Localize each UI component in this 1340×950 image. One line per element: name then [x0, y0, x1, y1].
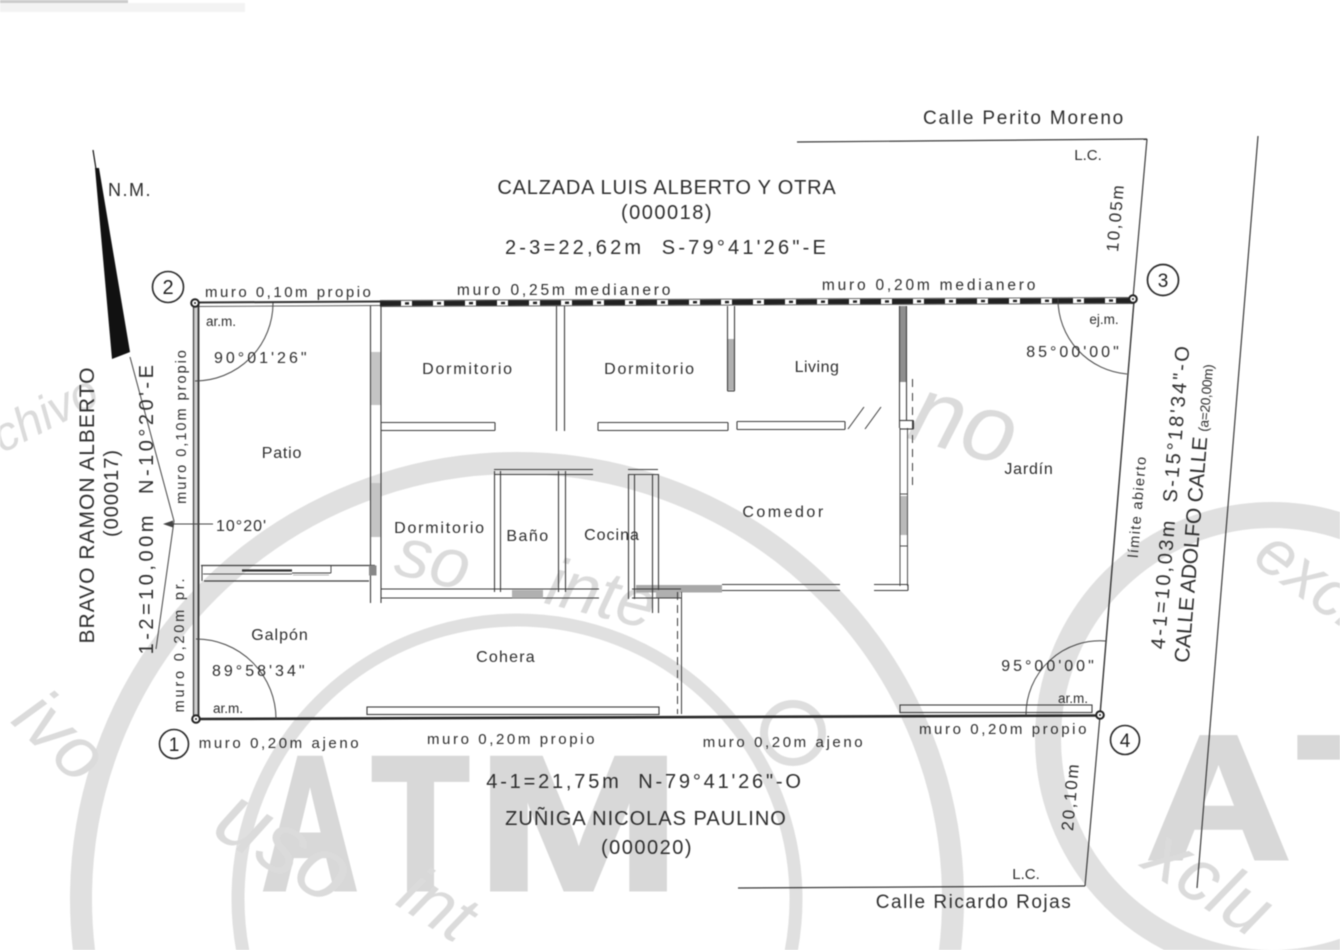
- svg-text:Cohera: Cohera: [476, 649, 536, 666]
- svg-text:4-1=21,75m N-79°41'26"-O: 4-1=21,75m N-79°41'26"-O: [486, 771, 803, 793]
- svg-text:CALZADA LUIS ALBERTO Y OTRA: CALZADA LUIS ALBERTO Y OTRA: [497, 177, 836, 199]
- svg-text:3: 3: [1158, 271, 1169, 292]
- svg-text:Dormitorio: Dormitorio: [394, 520, 486, 537]
- svg-text:muro 0,10m propio: muro 0,10m propio: [174, 348, 190, 504]
- svg-text:Dormitorio: Dormitorio: [604, 361, 696, 378]
- svg-text:Comedor: Comedor: [742, 504, 825, 521]
- svg-text:muro 0,20m pr.: muro 0,20m pr.: [172, 576, 188, 713]
- svg-text:ar.m.: ar.m.: [213, 701, 243, 716]
- svg-text:10°20': 10°20': [216, 518, 267, 535]
- svg-text:muro 0,10m propio: muro 0,10m propio: [205, 284, 373, 301]
- svg-text:ZUÑIGA NICOLAS PAULINO: ZUÑIGA NICOLAS PAULINO: [505, 806, 787, 830]
- svg-text:BRAVO RAMON ALBERTO: BRAVO RAMON ALBERTO: [76, 367, 99, 644]
- svg-text:(000020): (000020): [601, 837, 693, 859]
- svg-text:muro 0,20m ajeno: muro 0,20m ajeno: [199, 735, 362, 752]
- svg-text:muro 0,20m propio: muro 0,20m propio: [919, 721, 1089, 738]
- svg-text:85°00'00": 85°00'00": [1026, 344, 1122, 361]
- svg-text:T: T: [1298, 701, 1340, 896]
- svg-text:Cocina: Cocina: [584, 527, 640, 544]
- svg-text:Jardín: Jardín: [1004, 461, 1053, 478]
- svg-text:muro 0,20m propio: muro 0,20m propio: [427, 731, 597, 748]
- svg-text:4: 4: [1120, 731, 1131, 752]
- svg-text:N.M.: N.M.: [108, 180, 152, 200]
- svg-text:(000017): (000017): [101, 449, 123, 537]
- svg-text:muro 0,20m medianero: muro 0,20m medianero: [822, 277, 1038, 294]
- svg-text:Calle Perito Moreno: Calle Perito Moreno: [923, 108, 1125, 129]
- svg-text:89°58'34": 89°58'34": [212, 663, 308, 680]
- svg-text:L.C.: L.C.: [1074, 147, 1102, 164]
- svg-text:1-2=10,00m N-10°20'-E: 1-2=10,00m N-10°20'-E: [136, 362, 158, 655]
- svg-text:muro 0,25m medianero: muro 0,25m medianero: [457, 282, 673, 299]
- svg-text:90°01'26": 90°01'26": [214, 350, 310, 367]
- svg-text:muro 0,20m ajeno: muro 0,20m ajeno: [703, 734, 866, 751]
- svg-text:2: 2: [162, 277, 173, 299]
- svg-text:Baño: Baño: [506, 528, 549, 545]
- svg-text:1: 1: [169, 735, 180, 756]
- svg-text:Calle Ricardo Rojas: Calle Ricardo Rojas: [876, 892, 1072, 913]
- svg-text:Patio: Patio: [262, 445, 302, 462]
- svg-text:(000018): (000018): [621, 202, 713, 224]
- svg-text:Living: Living: [795, 359, 840, 376]
- svg-text:ej.m.: ej.m.: [1089, 312, 1118, 327]
- svg-text:ar.m.: ar.m.: [1058, 691, 1088, 706]
- svg-text:Galpón: Galpón: [251, 627, 309, 644]
- svg-text:Dormitorio: Dormitorio: [422, 361, 514, 378]
- svg-text:ar.m.: ar.m.: [206, 314, 236, 329]
- svg-text:L.C.: L.C.: [1012, 866, 1040, 883]
- svg-text:2-3=22,62m S-79°41'26"-E: 2-3=22,62m S-79°41'26"-E: [505, 237, 829, 259]
- svg-text:95°00'00": 95°00'00": [1001, 658, 1097, 675]
